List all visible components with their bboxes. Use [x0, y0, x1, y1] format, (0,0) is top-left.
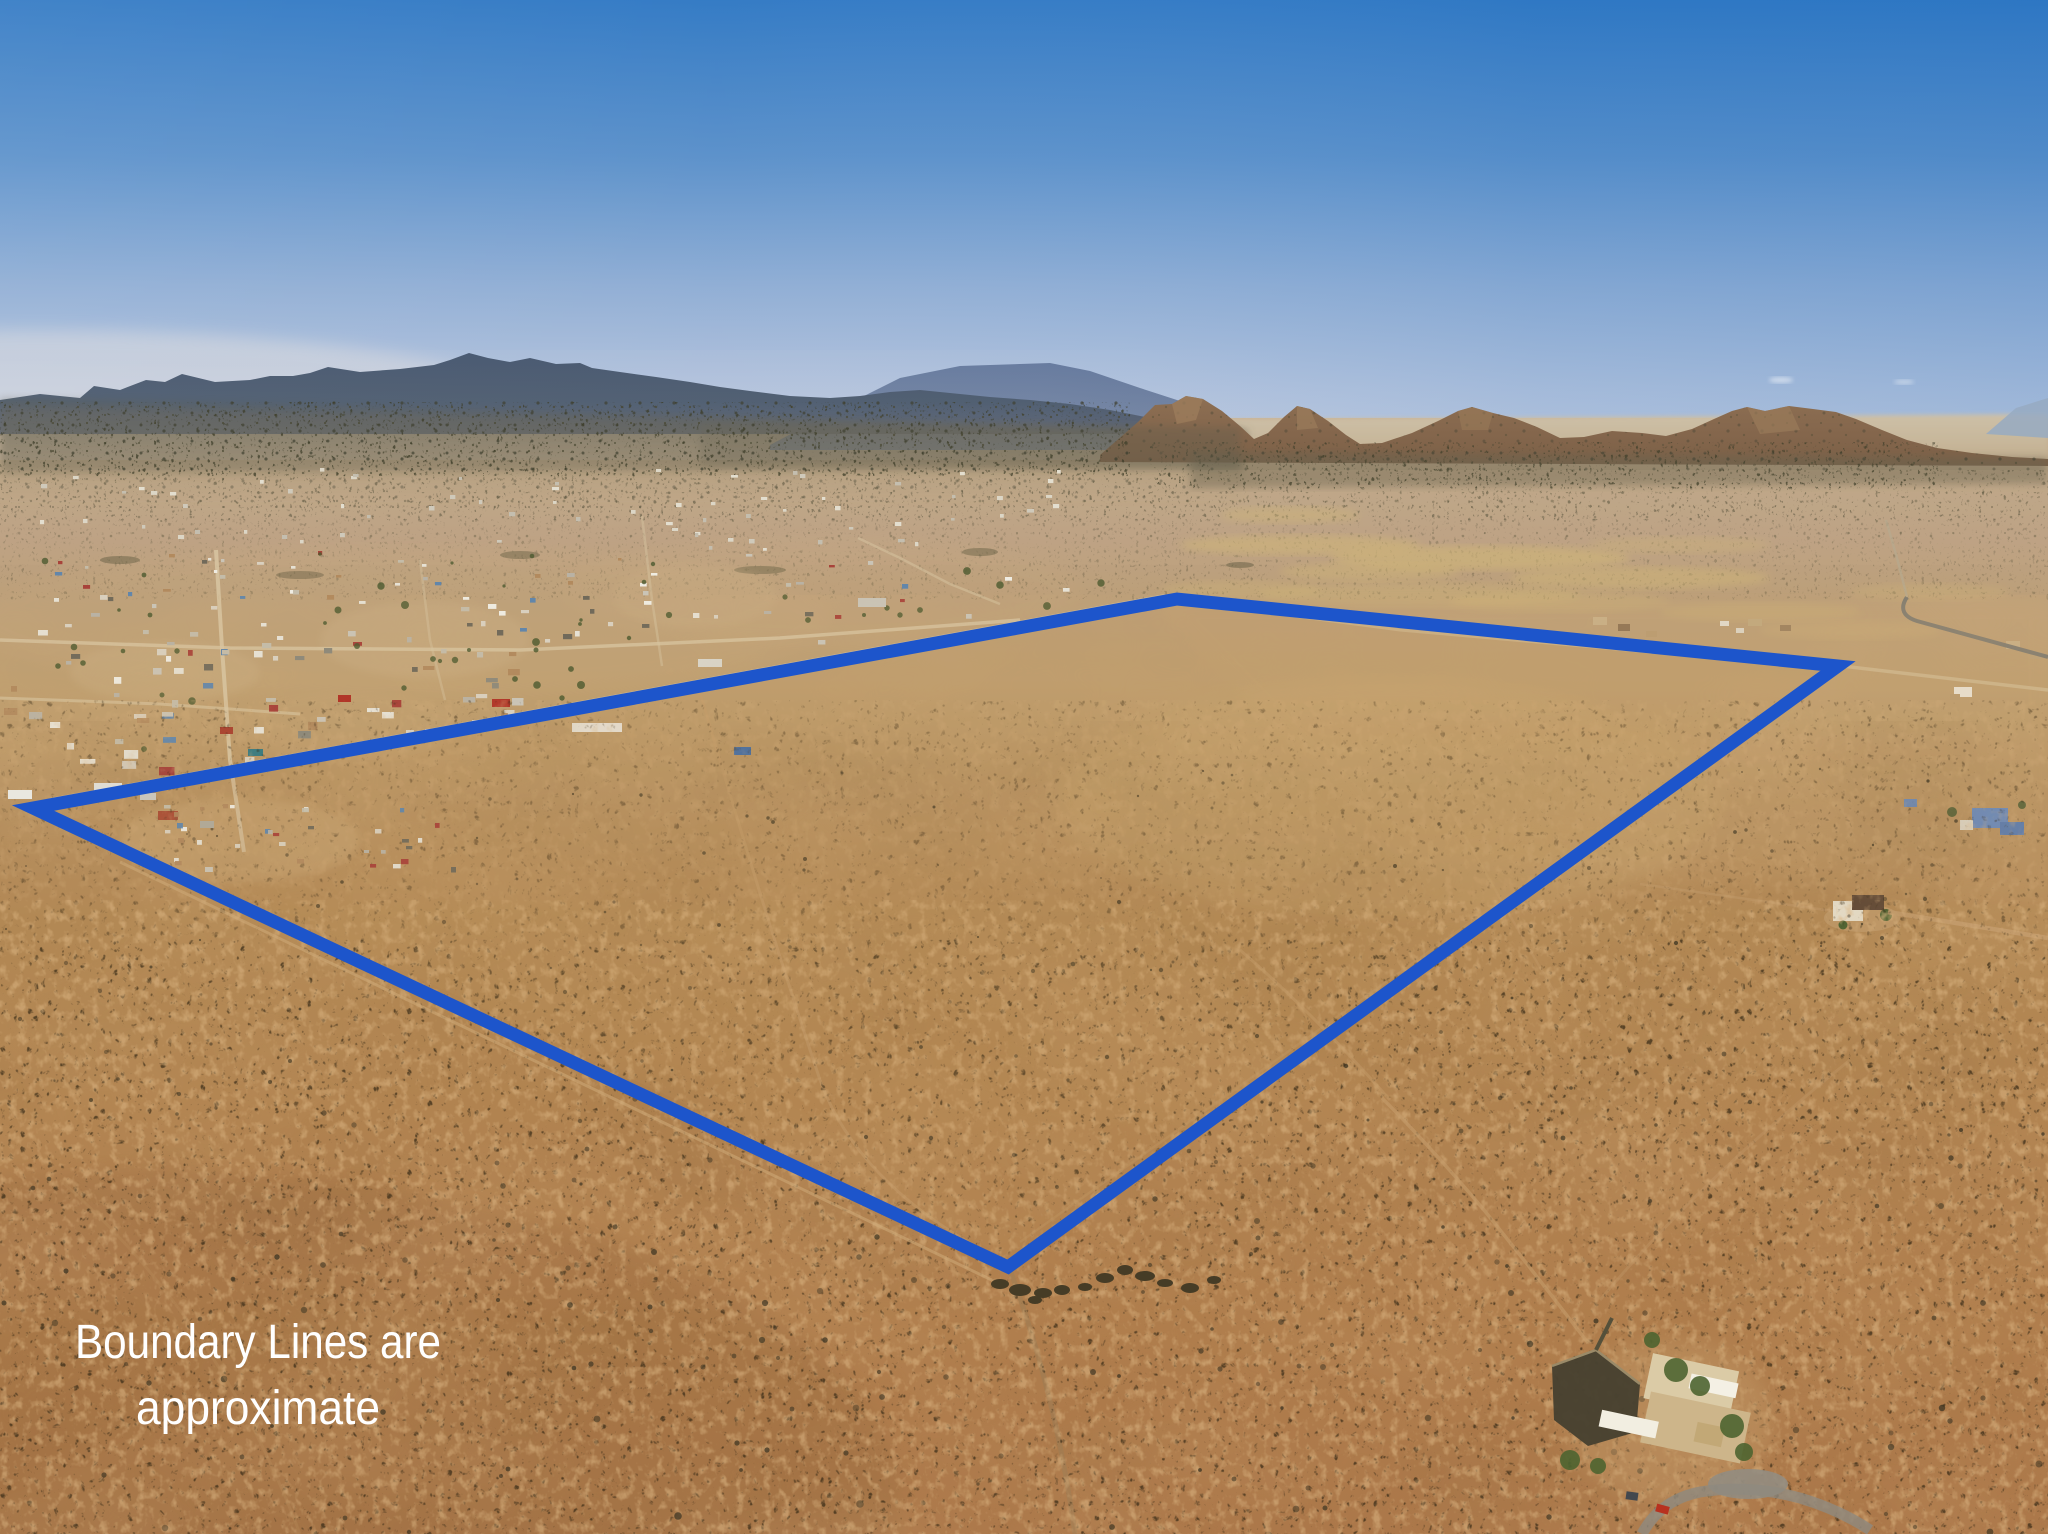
svg-text:Boundary Lines are: Boundary Lines are — [75, 1316, 441, 1369]
svg-text:approximate: approximate — [136, 1382, 380, 1435]
